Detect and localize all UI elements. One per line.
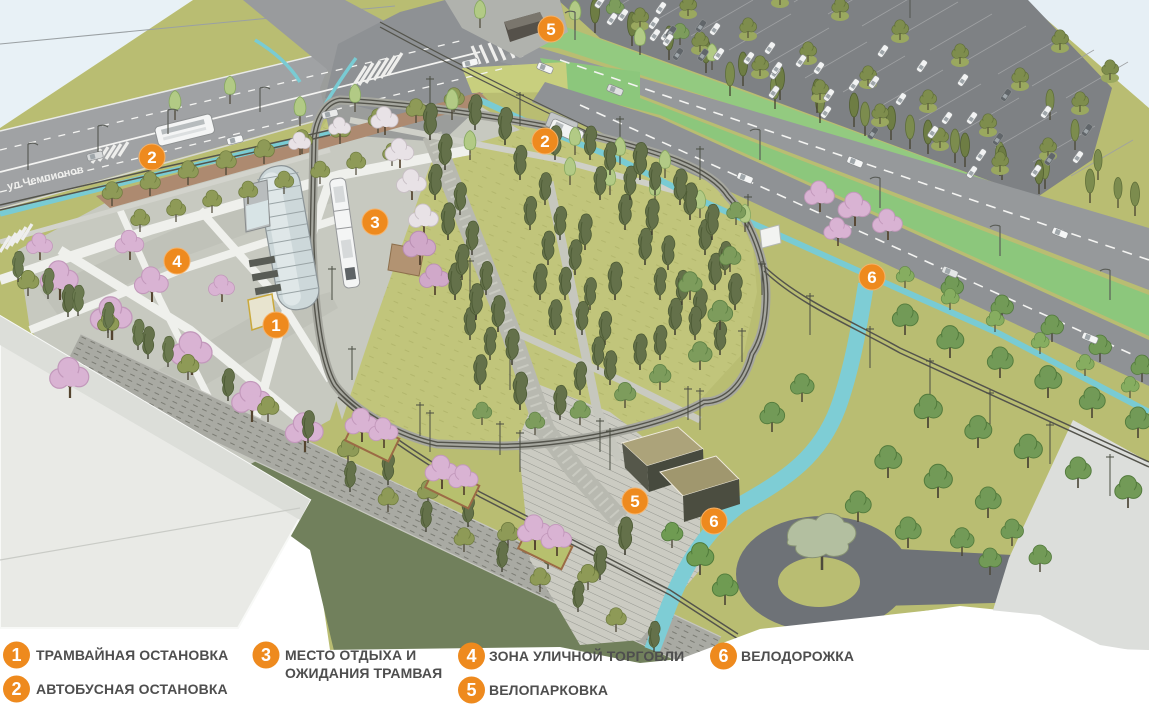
svg-text:1: 1 bbox=[271, 316, 280, 335]
svg-text:ЗОНА УЛИЧНОЙ ТОРГОВЛИ: ЗОНА УЛИЧНОЙ ТОРГОВЛИ bbox=[489, 647, 684, 664]
svg-text:АВТОБУСНАЯ ОСТАНОВКА: АВТОБУСНАЯ ОСТАНОВКА bbox=[36, 681, 228, 697]
svg-text:6: 6 bbox=[709, 512, 718, 531]
svg-text:МЕСТО ОТДЫХА И: МЕСТО ОТДЫХА И bbox=[285, 647, 416, 663]
svg-text:2: 2 bbox=[147, 148, 156, 167]
svg-text:ВЕЛОДОРОЖКА: ВЕЛОДОРОЖКА bbox=[741, 648, 854, 664]
svg-text:6: 6 bbox=[718, 646, 728, 666]
svg-text:4: 4 bbox=[172, 252, 182, 271]
svg-text:3: 3 bbox=[261, 645, 271, 665]
svg-text:6: 6 bbox=[867, 268, 876, 287]
svg-text:2: 2 bbox=[11, 679, 21, 699]
svg-text:ТРАМВАЙНАЯ ОСТАНОВКА: ТРАМВАЙНАЯ ОСТАНОВКА bbox=[36, 646, 228, 663]
svg-text:5: 5 bbox=[630, 492, 639, 511]
svg-text:5: 5 bbox=[466, 680, 476, 700]
svg-text:5: 5 bbox=[546, 20, 555, 39]
svg-text:2: 2 bbox=[540, 132, 549, 151]
svg-text:ОЖИДАНИЯ ТРАМВАЯ: ОЖИДАНИЯ ТРАМВАЯ bbox=[285, 665, 442, 681]
svg-text:1: 1 bbox=[11, 645, 21, 665]
svg-text:4: 4 bbox=[466, 646, 476, 666]
svg-text:3: 3 bbox=[370, 213, 379, 232]
svg-text:ВЕЛОПАРКОВКА: ВЕЛОПАРКОВКА bbox=[489, 682, 608, 698]
